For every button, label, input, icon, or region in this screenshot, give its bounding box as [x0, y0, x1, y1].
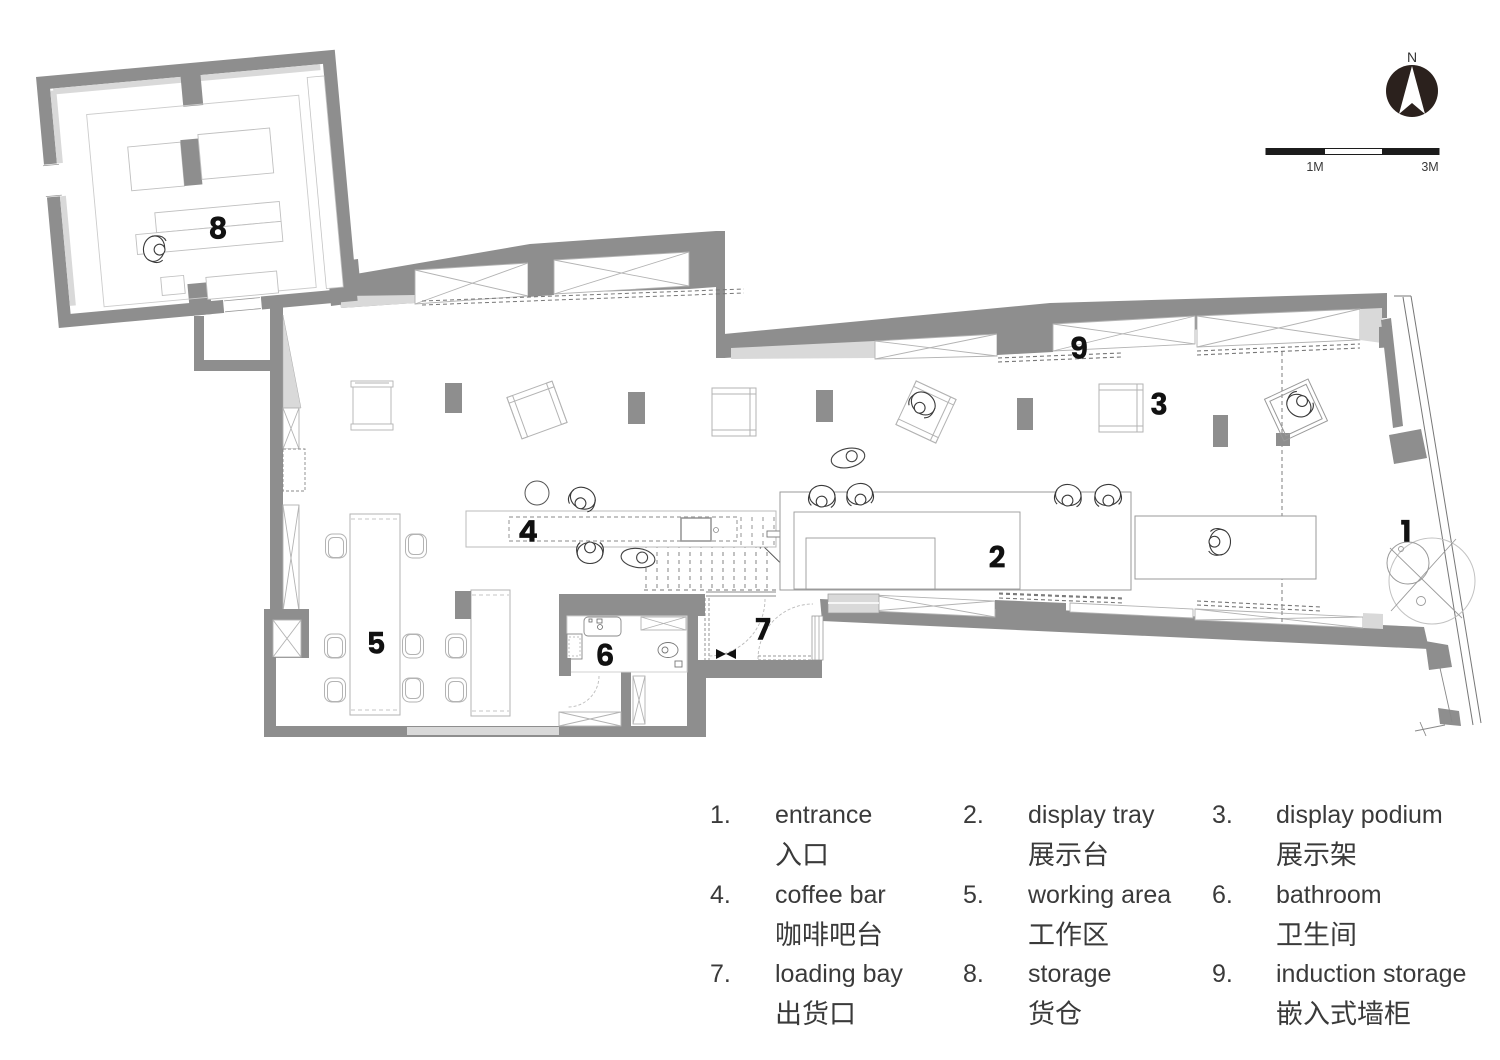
svg-text:2.: 2.	[963, 801, 984, 829]
svg-text:9.: 9.	[1212, 960, 1233, 988]
svg-text:working area: working area	[1027, 881, 1171, 909]
svg-text:1M: 1M	[1306, 160, 1323, 174]
svg-text:7.: 7.	[710, 960, 731, 988]
svg-text:entrance: entrance	[775, 801, 872, 829]
svg-text:N: N	[1407, 49, 1417, 65]
svg-text:5.: 5.	[963, 881, 984, 909]
svg-text:coffee bar: coffee bar	[775, 881, 886, 909]
svg-text:induction storage: induction storage	[1276, 960, 1466, 988]
svg-text:3.: 3.	[1212, 801, 1233, 829]
svg-text:loading bay: loading bay	[775, 960, 903, 988]
svg-text:storage: storage	[1028, 960, 1111, 988]
svg-text:8.: 8.	[963, 960, 984, 988]
svg-text:1.: 1.	[710, 801, 731, 829]
svg-text:4.: 4.	[710, 881, 731, 909]
svg-text:display podium: display podium	[1276, 801, 1443, 829]
svg-text:3M: 3M	[1421, 160, 1438, 174]
svg-text:6.: 6.	[1212, 881, 1233, 909]
svg-text:display tray: display tray	[1028, 801, 1155, 829]
svg-text:bathroom: bathroom	[1276, 881, 1382, 909]
